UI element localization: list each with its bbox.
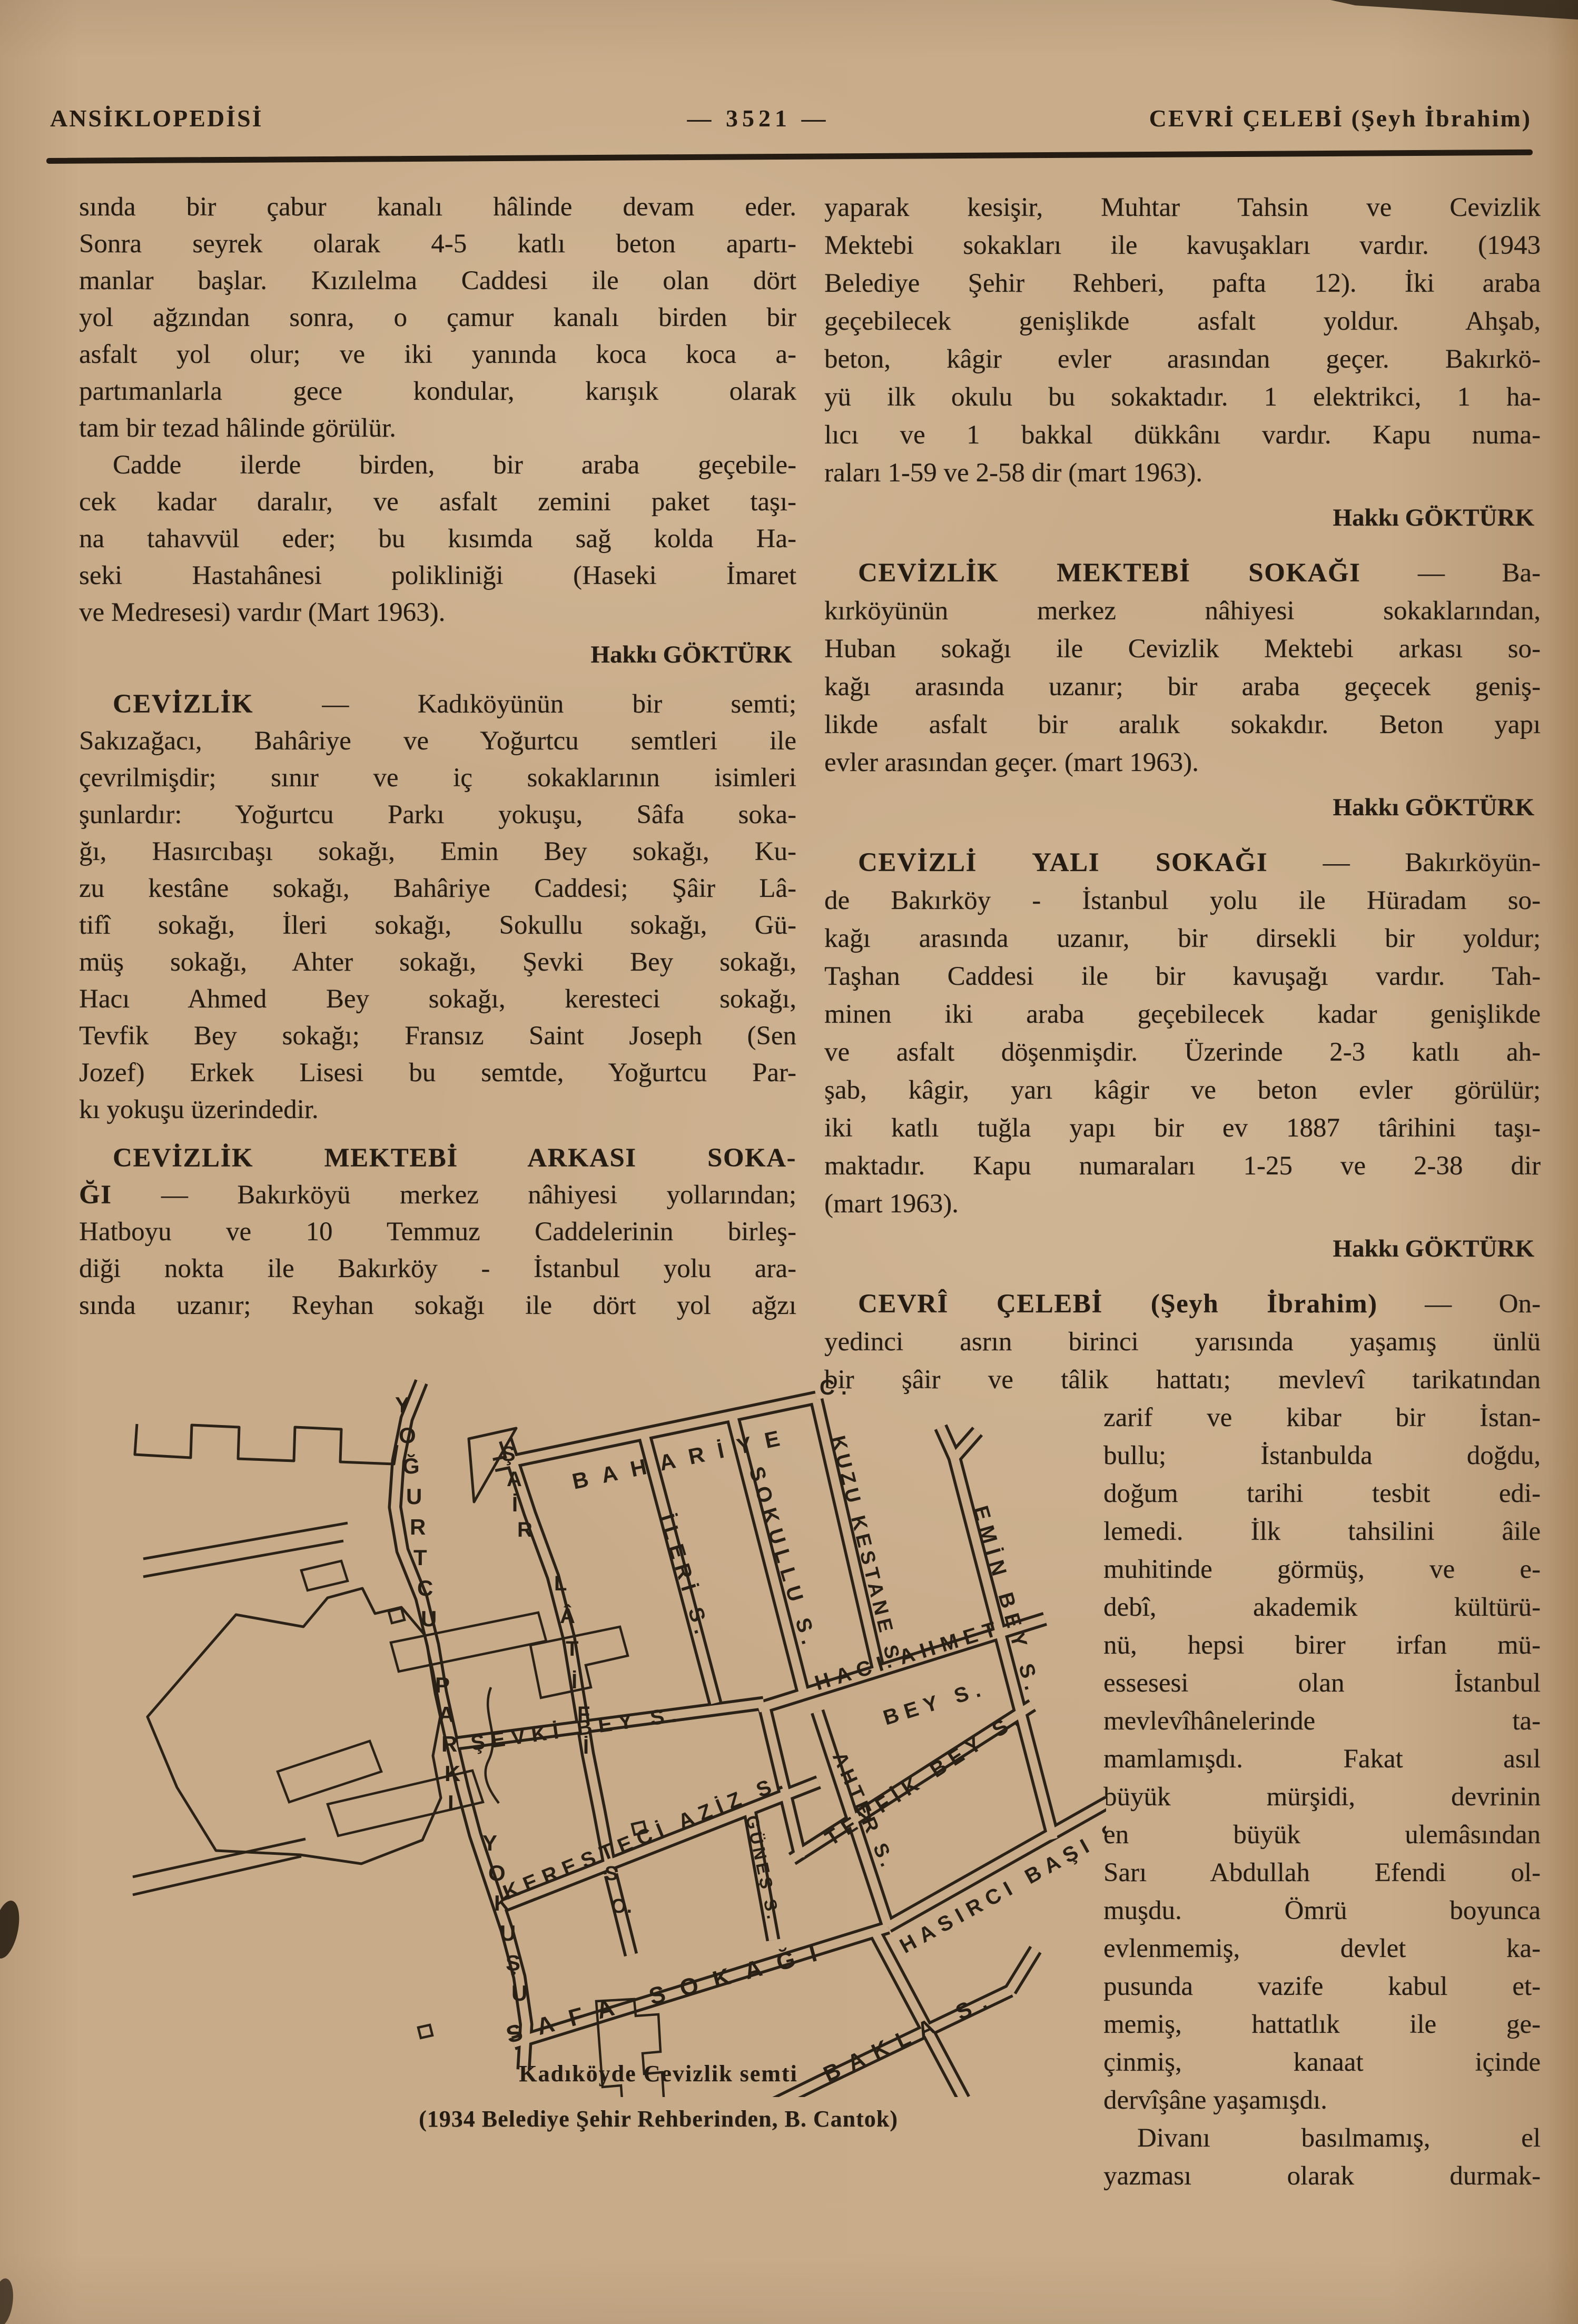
text-line: maktadır. Kapu numaraları 1-25 ve 2-38 d… [824,1147,1541,1185]
text-line: lemedi. İlk tahsilini âile [1103,1512,1541,1550]
entry-paragraph: CEVİZLİ YALI SOKAĞI — Bakırköyün-de Bakı… [824,844,1541,1223]
entry-running-head: CEVRİ ÇELEBİ (Şeyh İbrahim) [1149,104,1532,132]
author-signature: Hakkı GÖKTÜRK [824,499,1534,536]
text-line: müş sokağı, Ahter sokağı, Şevki Bey soka… [79,944,796,981]
text-line: çevrilmişdir; sınır ve iç sokaklarının i… [79,759,796,796]
text-line: yol ağzından sonra, o çamur kanalı birde… [79,299,796,336]
text-line: CEVİZLİ YALI SOKAĞI — Bakırköyün- [824,844,1541,882]
text-line: lıcı ve 1 bakkal dükkânı vardır. Kapu nu… [824,416,1541,454]
text-line: na tahavvül eder; bu kısımda sağ kolda H… [79,520,796,557]
text-line: asfalt yol olur; ve iki yanında koca koc… [79,336,796,373]
text-line: zarif ve kibar bir İstan- [1103,1399,1541,1437]
street-label-bahariye-c: C. [820,1376,853,1399]
text-line: diği nokta ile Bakırköy - İstanbul yolu … [79,1250,796,1287]
text-line: cek kadar daralır, ve asfalt zemini pake… [79,483,796,520]
text-line: çinmiş, kanaat içinde [1103,2043,1541,2081]
text-line: yazması olarak durmak- [1103,2157,1541,2195]
header-rule [46,150,1533,164]
text-line: CEVİZLİK MEKTEBİ SOKAĞI — Ba- [824,554,1541,592]
text-line: Cadde ilerde birden, bir araba geçebile- [79,447,796,483]
street-label-hasirci-basi: HASIRCI BAŞI S. [896,1810,1106,1958]
map-street-labels: YOĞURTCU PARKI YOKUŞU ŞAİR LÂTİFİ SO. BA… [395,1376,1106,2086]
text-line: Sakızağacı, Bahâriye ve Yoğurtcu semtler… [79,723,796,759]
text-line: sında bir çabur kanalı hâlinde devam ede… [79,189,796,225]
text-line: geçebilecek genişlikde asfalt yoldur. Ah… [824,302,1541,340]
text-line: CEVRÎ ÇELEBİ (Şeyh İbrahim) — On- [824,1285,1541,1323]
street-label-gunes: GÜNEŞ S. [742,1814,784,1924]
district-map: YOĞURTCU PARKI YOKUŞU ŞAİR LÂTİFİ SO. BA… [53,1349,1106,2097]
text-line: minen iki araba geçebilecek kadar genişl… [824,995,1541,1033]
text-line: mamlamışdı. Fakat asıl [1103,1740,1541,1778]
author-signature: Hakkı GÖKTÜRK [824,789,1534,826]
text-line: Huban sokağı ile Cevizlik Mektebi arkası… [824,630,1541,668]
street-label-haci-ahmet-2: BEY S. [881,1676,989,1729]
text-line: dervîşâne yaşamışdı. [1103,2081,1541,2119]
text-line: tam bir tezad hâlinde görülür. [79,410,796,447]
text-line: ğı, Hasırcıbaşı sokağı, Emin Bey sokağı,… [79,833,796,870]
text-line: evler arasından geçer. (mart 1963). [824,744,1541,782]
text-line: kağı arasında uzanır, bir dirsekli bir y… [824,919,1541,957]
text-line: doğum tarihi tesbit edi- [1103,1475,1541,1512]
text-line: muhitinde görmüş, ve e- [1103,1550,1541,1588]
text-line: ve asfalt döşenmişdir. Üzerinde 2-3 katl… [824,1033,1541,1071]
text-line: mevlevîhânelerinde ta- [1103,1702,1541,1740]
text-line: muşdu. Ömrü boyunca [1103,1892,1541,1930]
text-line: seki Hastahânesi polikliniği (Haseki İma… [79,557,796,594]
scan-artifact-blob [0,1898,24,1961]
text-line: ĞI — Bakırköyü merkez nâhiyesi yollarınd… [79,1176,796,1213]
text-line: evlenmemiş, devlet ka- [1103,1930,1541,1967]
text-line: beton, kâgir evler arasından geçer. Bakı… [824,340,1541,378]
text-line: kırköyünün merkez nâhiyesi sokaklarından… [824,592,1541,630]
text-line: Hacı Ahmed Bey sokağı, keresteci sokağı, [79,981,796,1017]
author-signature: Hakkı GÖKTÜRK [824,1230,1534,1267]
text-line: CEVİZLİK — Kadıköyünün bir semti; [79,686,796,723]
map-caption-title: Kadıköyde Cevizlik semti [158,2060,1159,2087]
text-line: tifî sokağı, İleri sokağı, Sokullu sokağ… [79,907,796,944]
text-line: zu kestâne sokağı, Bahâriye Caddesi; Şâi… [79,870,796,907]
running-title: ANSİKLOPEDİSİ [50,104,263,132]
text-line: likde asfalt bir aralık sokakdır. Beton … [824,706,1541,744]
street-label-ileri: İLERİ S. [655,1511,715,1643]
text-line: Tevfik Bey sokağı; Fransız Saint Joseph … [79,1017,796,1054]
text-line: Jozef) Erkek Lisesi bu semtde, Yoğurtcu … [79,1054,796,1091]
text-line: essesesi olan İstanbul [1103,1664,1541,1702]
text-line: en büyük ulemâsından [1103,1816,1541,1854]
left-column: sında bir çabur kanalı hâlinde devam ede… [79,189,796,1324]
text-line: CEVİZLİK MEKTEBİ ARKASI SOKA- [79,1140,796,1176]
text-line: manlar başlar. Kızılelma Caddesi ile ola… [79,262,796,299]
text-line: ve Medresesi) vardır (Mart 1963). [79,594,796,631]
text-line: büyük mürşidi, devrinin [1103,1778,1541,1816]
paragraph: sında bir çabur kanalı hâlinde devam ede… [79,189,796,447]
text-line: yü ilk okulu bu sokaktadır. 1 elektrikci… [824,378,1541,416]
text-line: Hatboyu ve 10 Temmuz Caddelerinin birleş… [79,1213,796,1250]
encyclopedia-page: ANSİKLOPEDİSİ — 3521 — CEVRİ ÇELEBİ (Şey… [0,0,1578,2324]
author-signature: Hakkı GÖKTÜRK [79,636,792,673]
text-line: iki katlı tuğla yapı bir ev 1887 târihin… [824,1109,1541,1147]
text-line: kı yokuşu üzerindedir. [79,1091,796,1128]
text-line: nü, hepsi birer irfan mü- [1103,1626,1541,1664]
text-line: Divanı basılmamış, el [1103,2119,1541,2157]
paragraph: zarif ve kibar bir İstan-bullu; İstanbul… [1103,1399,1541,2119]
text-line: kağı arasında uzanır; bir araba geçecek … [824,668,1541,706]
text-line: bullu; İstanbulda doğdu, [1103,1437,1541,1475]
scan-artifact-corner [1330,0,1578,34]
text-line: şab, kâgir, yarı kâgir ve beton evler gö… [824,1071,1541,1109]
text-line: partımanlarla gece kondular, karışık ola… [79,373,796,410]
text-line: Sonra seyrek olarak 4-5 katlı beton apar… [79,225,796,262]
paragraph: yaparak kesişir, Muhtar Tahsin ve Cevizl… [824,189,1541,492]
text-line: debî, akademik kültürü- [1103,1588,1541,1626]
map-caption-credit: (1934 Belediye Şehir Rehberinden, B. Can… [158,2105,1159,2132]
paragraph: Cadde ilerde birden, bir araba geçebile-… [79,447,796,631]
text-line: memiş, hattatlık ile ge- [1103,2005,1541,2043]
text-line: Taşhan Caddesi ile bir kavuşağı vardır. … [824,957,1541,995]
text-line: (mart 1963). [824,1185,1541,1223]
text-line: de Bakırköy - İstanbul yolu ile Hüradam … [824,882,1541,919]
text-line: raları 1-59 ve 2-58 dir (mart 1963). [824,454,1541,492]
text-line: şunlardır: Yoğurtcu Parkı yokuşu, Sâfa s… [79,796,796,833]
text-line: sında uzanır; Reyhan sokağı ile dört yol… [79,1287,796,1324]
text-line: Mektebi sokakları ile kavuşakları vardır… [824,226,1541,264]
page-number: — 3521 — [622,104,895,132]
text-line: Belediye Şehir Rehberi, pafta 12). İki a… [824,264,1541,302]
entry-paragraph: CEVİZLİK MEKTEBİ ARKASI SOKA-ĞI — Bakırk… [79,1140,796,1324]
text-line: Sarı Abdullah Efendi ol- [1103,1854,1541,1892]
scan-artifact-blob [0,2277,16,2324]
entry-paragraph: CEVİZLİK MEKTEBİ SOKAĞI — Ba-kırköyünün … [824,554,1541,782]
paragraph: Divanı basılmamış, elyazması olarak durm… [1103,2119,1541,2195]
street-label-safa: SAFA SOKAĞI [503,1935,835,2048]
text-line: yaparak kesişir, Muhtar Tahsin ve Cevizl… [824,189,1541,226]
entry-paragraph: CEVİZLİK — Kadıköyünün bir semti;Sakızağ… [79,686,796,1128]
text-line: pusunda vazife kabul et- [1103,1967,1541,2005]
